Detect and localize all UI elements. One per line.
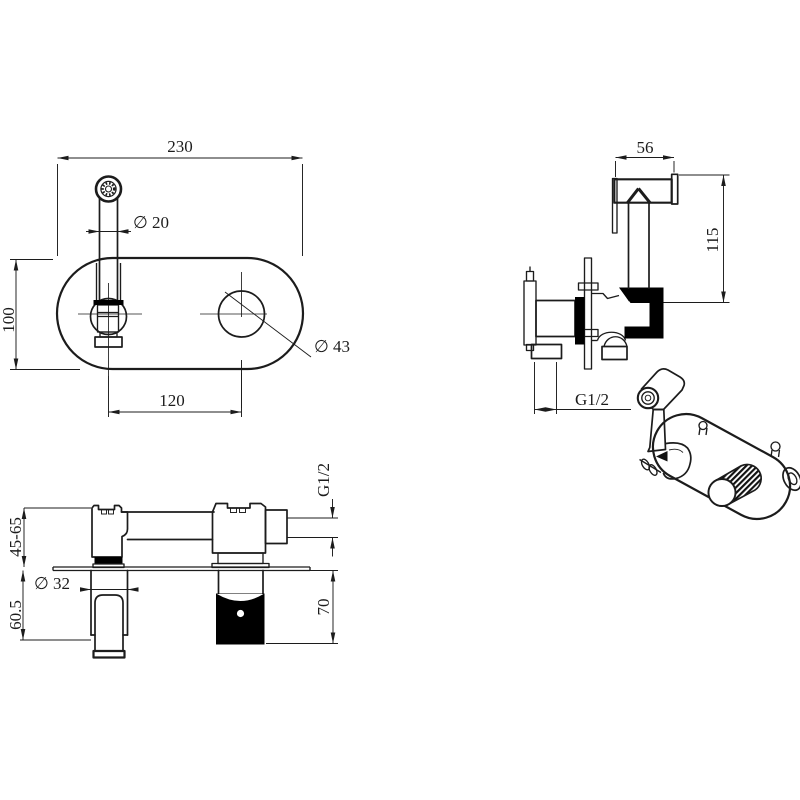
valve-body-section (212, 504, 287, 568)
perspective-sprayer (638, 369, 691, 479)
dim-handle-diameter-label: ∅ 32 (34, 574, 70, 593)
side-view: 56 115 G1/2 (524, 138, 730, 414)
dim-front-plate-width-label: 230 (167, 137, 193, 156)
dim-mounting-depth-label: 45-65 (6, 517, 25, 557)
dim-handle-projection-label: 60.5 (6, 600, 25, 630)
dim-handle-diameter: ∅ 32 (34, 574, 137, 593)
dim-body-length: 70 (266, 571, 338, 644)
dim-front-plate-height-label: 100 (0, 307, 18, 333)
dim-front-plate-height: 100 (0, 260, 80, 370)
dim-hole-diameter-label: ∅ 43 (314, 337, 350, 356)
wall-escutcheon (585, 258, 592, 369)
valve-gasket (575, 297, 585, 345)
dim-inlet-thread-label: G1/2 (575, 390, 609, 409)
outlet-stub-side (602, 347, 627, 360)
handle-body-section (92, 506, 128, 568)
dim-front-plate-width: 230 (58, 137, 303, 256)
connecting-arm (122, 512, 215, 540)
dim-sprayer-diameter: ∅ 20 (86, 213, 169, 232)
dim-overall-height-label: 115 (703, 228, 722, 253)
perspective-knob (709, 464, 762, 506)
inlet-stub (532, 345, 562, 359)
dim-overall-height: 115 (664, 175, 730, 303)
dim-mounting-depth: 45-65 (6, 508, 91, 567)
dim-head-length: 56 (616, 138, 675, 177)
shaft-seal-band (94, 300, 124, 305)
outlet-dome (604, 337, 627, 347)
dim-hole-diameter: ∅ 43 (225, 292, 350, 357)
front-view: 230 ∅ 20 100 ∅ 43 120 (0, 137, 350, 417)
inlet-valve-flange (524, 267, 585, 359)
oval-plate (57, 258, 303, 369)
sprayer-head (96, 177, 121, 202)
technical-drawing-page: 230 ∅ 20 100 ∅ 43 120 (0, 0, 800, 800)
sprayer-head-side (614, 179, 671, 202)
holder-screw-hole (237, 610, 244, 617)
sprayer-side (613, 174, 678, 288)
dim-outlet-thread-label: G1/2 (314, 463, 333, 497)
knob-face (709, 479, 736, 506)
perspective-view (638, 369, 800, 531)
dim-body-length-label: 70 (314, 599, 333, 616)
holder-body (592, 288, 664, 360)
valve-body (536, 301, 575, 337)
dim-sprayer-diameter-label: ∅ 20 (133, 213, 169, 232)
sprayer-seat-wedge (656, 451, 668, 462)
dim-hole-spacing-label: 120 (159, 391, 185, 410)
technical-drawing-canvas: 230 ∅ 20 100 ∅ 43 120 (0, 0, 800, 800)
sprayer-nozzle-face (638, 388, 658, 408)
front-centerlines (78, 272, 267, 408)
dim-head-length-label: 56 (637, 138, 654, 157)
dim-outlet-thread: G1/2 (287, 463, 338, 557)
section-view: 45-65 60.5 ∅ 32 G1/2 70 (6, 463, 338, 658)
handle-lever (91, 571, 128, 658)
outlet-connector (266, 510, 288, 544)
holder-box-section (216, 571, 265, 645)
dim-inlet-thread: G1/2 (535, 362, 632, 414)
